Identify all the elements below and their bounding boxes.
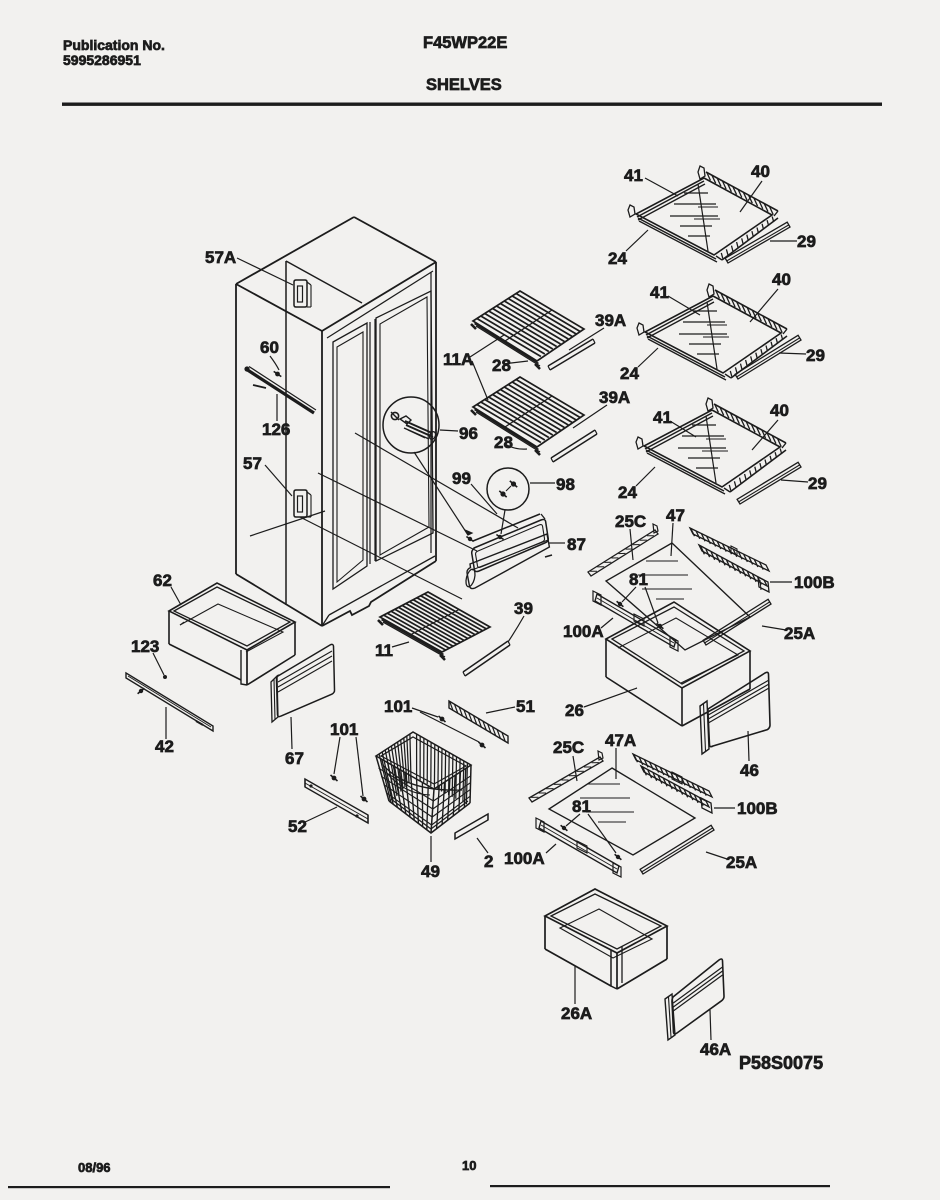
svg-text:96: 96 <box>459 424 478 443</box>
svg-text:67: 67 <box>285 749 304 768</box>
svg-text:46A: 46A <box>700 1040 731 1059</box>
svg-text:98: 98 <box>556 475 575 494</box>
svg-text:39: 39 <box>514 599 533 618</box>
svg-text:51: 51 <box>516 697 535 716</box>
svg-text:25A: 25A <box>726 853 757 872</box>
svg-text:29: 29 <box>797 232 816 251</box>
svg-text:100B: 100B <box>794 573 835 592</box>
svg-text:29: 29 <box>808 474 827 493</box>
svg-text:87: 87 <box>567 535 586 554</box>
svg-text:49: 49 <box>421 862 440 881</box>
svg-text:Publication No.: Publication No. <box>63 37 165 53</box>
svg-text:26: 26 <box>565 701 584 720</box>
svg-text:126: 126 <box>262 420 290 439</box>
svg-text:46: 46 <box>740 761 759 780</box>
svg-text:28: 28 <box>494 433 513 452</box>
svg-text:39A: 39A <box>595 311 626 330</box>
svg-text:100A: 100A <box>563 622 604 641</box>
svg-text:62: 62 <box>153 571 172 590</box>
svg-text:24: 24 <box>620 364 639 383</box>
svg-text:81: 81 <box>629 570 648 589</box>
svg-text:123: 123 <box>131 637 159 656</box>
svg-text:25C: 25C <box>553 738 584 757</box>
svg-text:10: 10 <box>462 1158 476 1173</box>
svg-text:2: 2 <box>484 852 493 871</box>
svg-text:101: 101 <box>384 697 412 716</box>
svg-text:40: 40 <box>770 401 789 420</box>
svg-text:101: 101 <box>330 720 358 739</box>
svg-text:42: 42 <box>155 737 174 756</box>
svg-text:SHELVES: SHELVES <box>426 76 502 94</box>
svg-text:100A: 100A <box>504 849 545 868</box>
svg-text:47A: 47A <box>605 731 636 750</box>
svg-text:39A: 39A <box>599 388 630 407</box>
svg-text:100B: 100B <box>737 799 778 818</box>
svg-text:57: 57 <box>243 454 262 473</box>
svg-text:11: 11 <box>375 641 393 660</box>
svg-text:41: 41 <box>624 166 643 185</box>
svg-text:25C: 25C <box>615 512 646 531</box>
svg-text:24: 24 <box>618 483 637 502</box>
svg-text:5995286951: 5995286951 <box>63 52 141 68</box>
svg-text:P58S0075: P58S0075 <box>739 1053 823 1073</box>
svg-text:25A: 25A <box>784 624 815 643</box>
svg-text:99: 99 <box>452 469 471 488</box>
svg-text:60: 60 <box>260 338 279 357</box>
svg-text:41: 41 <box>653 408 672 427</box>
svg-text:28: 28 <box>492 356 511 375</box>
svg-text:11A: 11A <box>443 350 473 369</box>
svg-text:F45WP22E: F45WP22E <box>423 34 507 52</box>
svg-text:41: 41 <box>650 283 669 302</box>
svg-text:40: 40 <box>751 162 770 181</box>
svg-text:81: 81 <box>572 797 591 816</box>
svg-text:40: 40 <box>772 270 791 289</box>
svg-text:08/96: 08/96 <box>78 1160 111 1175</box>
svg-text:29: 29 <box>806 346 825 365</box>
svg-text:52: 52 <box>288 817 307 836</box>
svg-text:47: 47 <box>666 506 685 525</box>
svg-text:24: 24 <box>608 249 627 268</box>
svg-text:57A: 57A <box>205 248 236 267</box>
svg-text:26A: 26A <box>561 1004 592 1023</box>
